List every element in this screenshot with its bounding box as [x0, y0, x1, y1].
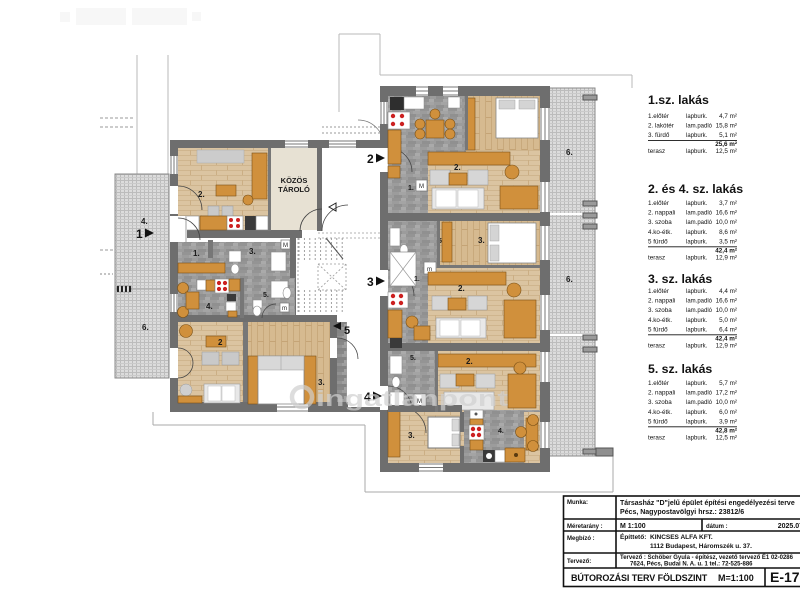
- svg-text:5 fürdő: 5 fürdő: [648, 326, 668, 333]
- svg-text:lapburk.: lapburk.: [686, 149, 708, 155]
- svg-text:Társasház "D"jelű épület építé: Társasház "D"jelű épület építési engedél…: [620, 500, 795, 507]
- svg-text:2: 2: [367, 152, 374, 166]
- svg-text:lapburk.: lapburk.: [686, 114, 708, 120]
- svg-text:7624, Pécs, Budai N. A. u. 1: 7624, Pécs, Budai N. A. u. 1 tel.: 72-52…: [630, 562, 753, 568]
- svg-text:Méretarány :: Méretarány :: [567, 524, 603, 530]
- svg-text:4.: 4.: [141, 217, 148, 226]
- svg-text:terasz: terasz: [648, 254, 665, 261]
- svg-text:3.: 3.: [408, 431, 415, 440]
- svg-text:10,0 m²: 10,0 m²: [716, 307, 737, 314]
- svg-text:Munka:: Munka:: [567, 500, 588, 506]
- svg-text:3.: 3.: [249, 247, 256, 256]
- svg-text:5: 5: [344, 325, 350, 337]
- svg-text:1.előtér: 1.előtér: [648, 113, 669, 120]
- svg-text:5.: 5.: [410, 355, 416, 362]
- svg-text:2.: 2.: [466, 357, 473, 366]
- svg-text:lam.padló: lam.padló: [686, 220, 713, 226]
- svg-text:3,7 m²: 3,7 m²: [719, 200, 737, 207]
- svg-text:2. nappali: 2. nappali: [648, 210, 675, 217]
- svg-text:3. szoba: 3. szoba: [648, 307, 672, 314]
- svg-text:Pécs, Nagypostavölgyi hrsz.: 2: Pécs, Nagypostavölgyi hrsz.: 23812/6: [620, 509, 744, 516]
- svg-text:lapburk.: lapburk.: [686, 201, 708, 207]
- svg-text:3. sz. lakás: 3. sz. lakás: [648, 272, 712, 286]
- svg-text:lam.padló: lam.padló: [686, 391, 713, 397]
- svg-text:E-17: E-17: [770, 569, 800, 585]
- svg-text:M: M: [419, 184, 424, 190]
- svg-text:M 1:100: M 1:100: [620, 523, 646, 530]
- svg-text:KÖZÖS: KÖZÖS: [281, 176, 308, 185]
- svg-text:6.: 6.: [566, 275, 573, 284]
- svg-text:Tervező : Schöber Gyula - épít: Tervező : Schöber Gyula - építész, vezet…: [620, 553, 794, 561]
- svg-text:ingatlanpont: ingatlanpont: [316, 386, 509, 411]
- svg-text:1.: 1.: [414, 276, 420, 283]
- svg-text:2. lakótér: 2. lakótér: [648, 123, 674, 130]
- svg-text:4.: 4.: [498, 428, 504, 435]
- svg-text:3,5 m²: 3,5 m²: [719, 238, 737, 245]
- svg-text:lapburk.: lapburk.: [686, 435, 708, 441]
- svg-text:2. nappali: 2. nappali: [648, 390, 675, 397]
- svg-text:12,9 m²: 12,9 m²: [716, 254, 737, 261]
- svg-text:terasz: terasz: [648, 148, 665, 155]
- svg-text:2.: 2.: [454, 163, 461, 172]
- svg-text:lapburk.: lapburk.: [686, 230, 708, 236]
- svg-text:12,5 m²: 12,5 m²: [716, 148, 737, 155]
- svg-text:lapburk.: lapburk.: [686, 410, 708, 416]
- svg-text:15,8 m²: 15,8 m²: [716, 123, 737, 130]
- svg-text:3. fürdő: 3. fürdő: [648, 132, 670, 139]
- svg-text:10,0 m²: 10,0 m²: [716, 399, 737, 406]
- svg-text:2.: 2.: [198, 190, 205, 199]
- svg-text:terasz: terasz: [648, 434, 665, 441]
- svg-text:KINCSES ALFA KFT.: KINCSES ALFA KFT.: [650, 534, 713, 541]
- svg-text:4.ko-étk.: 4.ko-étk.: [648, 317, 672, 324]
- svg-text:3. szoba: 3. szoba: [648, 219, 672, 226]
- svg-text:lapburk.: lapburk.: [686, 239, 708, 245]
- svg-text:6.: 6.: [566, 148, 573, 157]
- svg-text:M: M: [283, 243, 288, 249]
- svg-text:16,6 m²: 16,6 m²: [716, 298, 737, 305]
- svg-text:lam.padló: lam.padló: [686, 400, 713, 406]
- svg-text:10,0 m²: 10,0 m²: [716, 219, 737, 226]
- svg-text:lam.padló: lam.padló: [686, 211, 713, 217]
- svg-text:16,6 m²: 16,6 m²: [716, 210, 737, 217]
- svg-text:1.előtér: 1.előtér: [648, 200, 669, 207]
- svg-text:6.: 6.: [142, 323, 149, 332]
- svg-text:12,5 m²: 12,5 m²: [716, 434, 737, 441]
- svg-text:3,9 m²: 3,9 m²: [719, 418, 737, 425]
- svg-text:1.előtér: 1.előtér: [648, 380, 669, 387]
- svg-text:5,1 m²: 5,1 m²: [719, 132, 737, 139]
- svg-text:6,0 m²: 6,0 m²: [719, 409, 737, 416]
- svg-text:lapburk.: lapburk.: [686, 343, 708, 349]
- svg-text:5,7 m²: 5,7 m²: [719, 380, 737, 387]
- svg-text:4,7 m²: 4,7 m²: [719, 113, 737, 120]
- svg-text:lam.padló: lam.padló: [686, 124, 713, 130]
- svg-text:BÚTOROZÁSI TERV FÖLDSZINT: BÚTOROZÁSI TERV FÖLDSZINT: [571, 572, 708, 583]
- svg-text:dátum :: dátum :: [706, 524, 728, 530]
- svg-text:2025.07.: 2025.07.: [778, 523, 800, 530]
- svg-text:Megbízó :: Megbízó :: [567, 536, 595, 542]
- svg-text:4.: 4.: [206, 302, 213, 311]
- svg-text:1.: 1.: [408, 185, 414, 192]
- svg-text:4.ko-étk.: 4.ko-étk.: [648, 229, 672, 236]
- svg-text:5 fürdő: 5 fürdő: [648, 238, 668, 245]
- svg-text:5,0 m²: 5,0 m²: [719, 317, 737, 324]
- svg-text:1.sz. lakás: 1.sz. lakás: [648, 93, 709, 107]
- svg-text:Építtető:: Építtető:: [620, 532, 646, 541]
- svg-text:4.ko-étk.: 4.ko-étk.: [648, 409, 672, 416]
- svg-text:lapburk.: lapburk.: [686, 419, 708, 425]
- svg-text:1: 1: [136, 227, 143, 241]
- svg-text:8,6 m²: 8,6 m²: [719, 229, 737, 236]
- svg-text:Tervező:: Tervező:: [567, 559, 591, 565]
- svg-text:lapburk.: lapburk.: [686, 381, 708, 387]
- svg-text:M=1:100: M=1:100: [718, 573, 754, 583]
- svg-text:terasz: terasz: [648, 342, 665, 349]
- svg-text:1.: 1.: [193, 249, 200, 258]
- svg-text:lapburk.: lapburk.: [686, 133, 708, 139]
- svg-text:lapburk.: lapburk.: [686, 318, 708, 324]
- svg-text:3.: 3.: [478, 236, 485, 245]
- svg-text:2.: 2.: [458, 284, 465, 293]
- svg-text:lam.padló: lam.padló: [686, 299, 713, 305]
- svg-text:lapburk.: lapburk.: [686, 255, 708, 261]
- svg-text:2: 2: [218, 338, 223, 347]
- svg-text:1112 Budapest, Háromszék u. 37: 1112 Budapest, Háromszék u. 37.: [650, 543, 752, 550]
- svg-text:TÁROLÓ: TÁROLÓ: [278, 185, 310, 194]
- svg-text:lapburk.: lapburk.: [686, 327, 708, 333]
- svg-text:2. nappali: 2. nappali: [648, 298, 675, 305]
- svg-text:17,2 m²: 17,2 m²: [716, 390, 737, 397]
- svg-text:5.: 5.: [263, 292, 269, 299]
- svg-text:1.előtér: 1.előtér: [648, 288, 669, 295]
- svg-text:4,4 m²: 4,4 m²: [719, 288, 737, 295]
- svg-text:5 fürdő: 5 fürdő: [648, 418, 668, 425]
- svg-text:3: 3: [367, 275, 374, 289]
- svg-text:lam.padló: lam.padló: [686, 308, 713, 314]
- svg-text:5. sz. lakás: 5. sz. lakás: [648, 362, 712, 376]
- svg-text:2. és 4. sz. lakás: 2. és 4. sz. lakás: [648, 182, 743, 196]
- svg-text:m: m: [282, 306, 287, 312]
- svg-text:3. szoba: 3. szoba: [648, 399, 672, 406]
- svg-text:12,9 m²: 12,9 m²: [716, 342, 737, 349]
- svg-text:6,4 m²: 6,4 m²: [719, 326, 737, 333]
- svg-text:lapburk.: lapburk.: [686, 289, 708, 295]
